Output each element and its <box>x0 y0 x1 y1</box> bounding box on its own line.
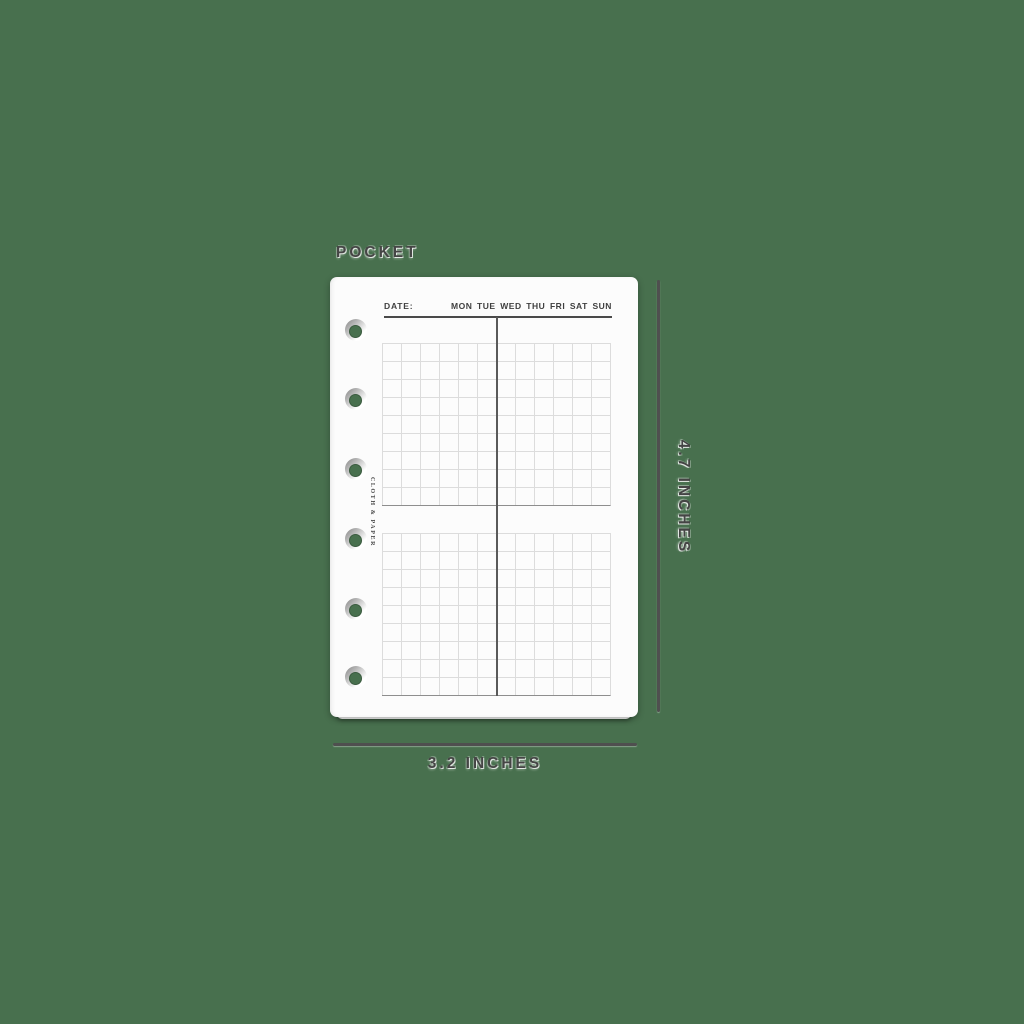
binder-hole-punch <box>349 464 362 477</box>
height-dimension-line <box>657 280 660 712</box>
width-dimension-line <box>333 743 637 746</box>
weekday-label: SAT <box>570 301 588 311</box>
binder-hole-punch <box>349 325 362 338</box>
weekday-label: WED <box>500 301 521 311</box>
height-dimension-label: 4.7 INCHES <box>674 440 692 554</box>
weekday-label: THU <box>526 301 545 311</box>
weekday-label: FRI <box>550 301 565 311</box>
binder-hole <box>345 388 367 410</box>
binder-hole <box>345 528 367 550</box>
binder-hole <box>345 598 367 620</box>
width-dimension-label: 3.2 INCHES <box>428 755 542 773</box>
binder-hole <box>345 319 367 341</box>
binder-hole <box>345 666 367 688</box>
page-header: DATE: MON TUE WED THU FRI SAT SUN <box>384 301 612 314</box>
binder-hole-punch <box>349 534 362 547</box>
brand-text: CLOTH & PAPER <box>369 477 375 547</box>
weekday-row: MON TUE WED THU FRI SAT SUN <box>451 301 612 311</box>
binder-hole-punch <box>349 672 362 685</box>
center-divider-line <box>496 317 498 696</box>
binder-hole-punch <box>349 604 362 617</box>
binder-hole <box>345 458 367 480</box>
binder-hole-punch <box>349 394 362 407</box>
header-rule <box>384 316 612 318</box>
date-label: DATE: <box>384 301 413 311</box>
planner-page: CLOTH & PAPER DATE: MON TUE WED THU FRI … <box>330 277 638 717</box>
weekday-label: MON <box>451 301 472 311</box>
weekday-label: TUE <box>477 301 496 311</box>
size-name-label: POCKET <box>336 244 419 262</box>
weekday-label: SUN <box>592 301 611 311</box>
product-mockup: POCKET 4.7 INCHES 3.2 INCHES CLOTH & PAP… <box>0 0 1024 1024</box>
